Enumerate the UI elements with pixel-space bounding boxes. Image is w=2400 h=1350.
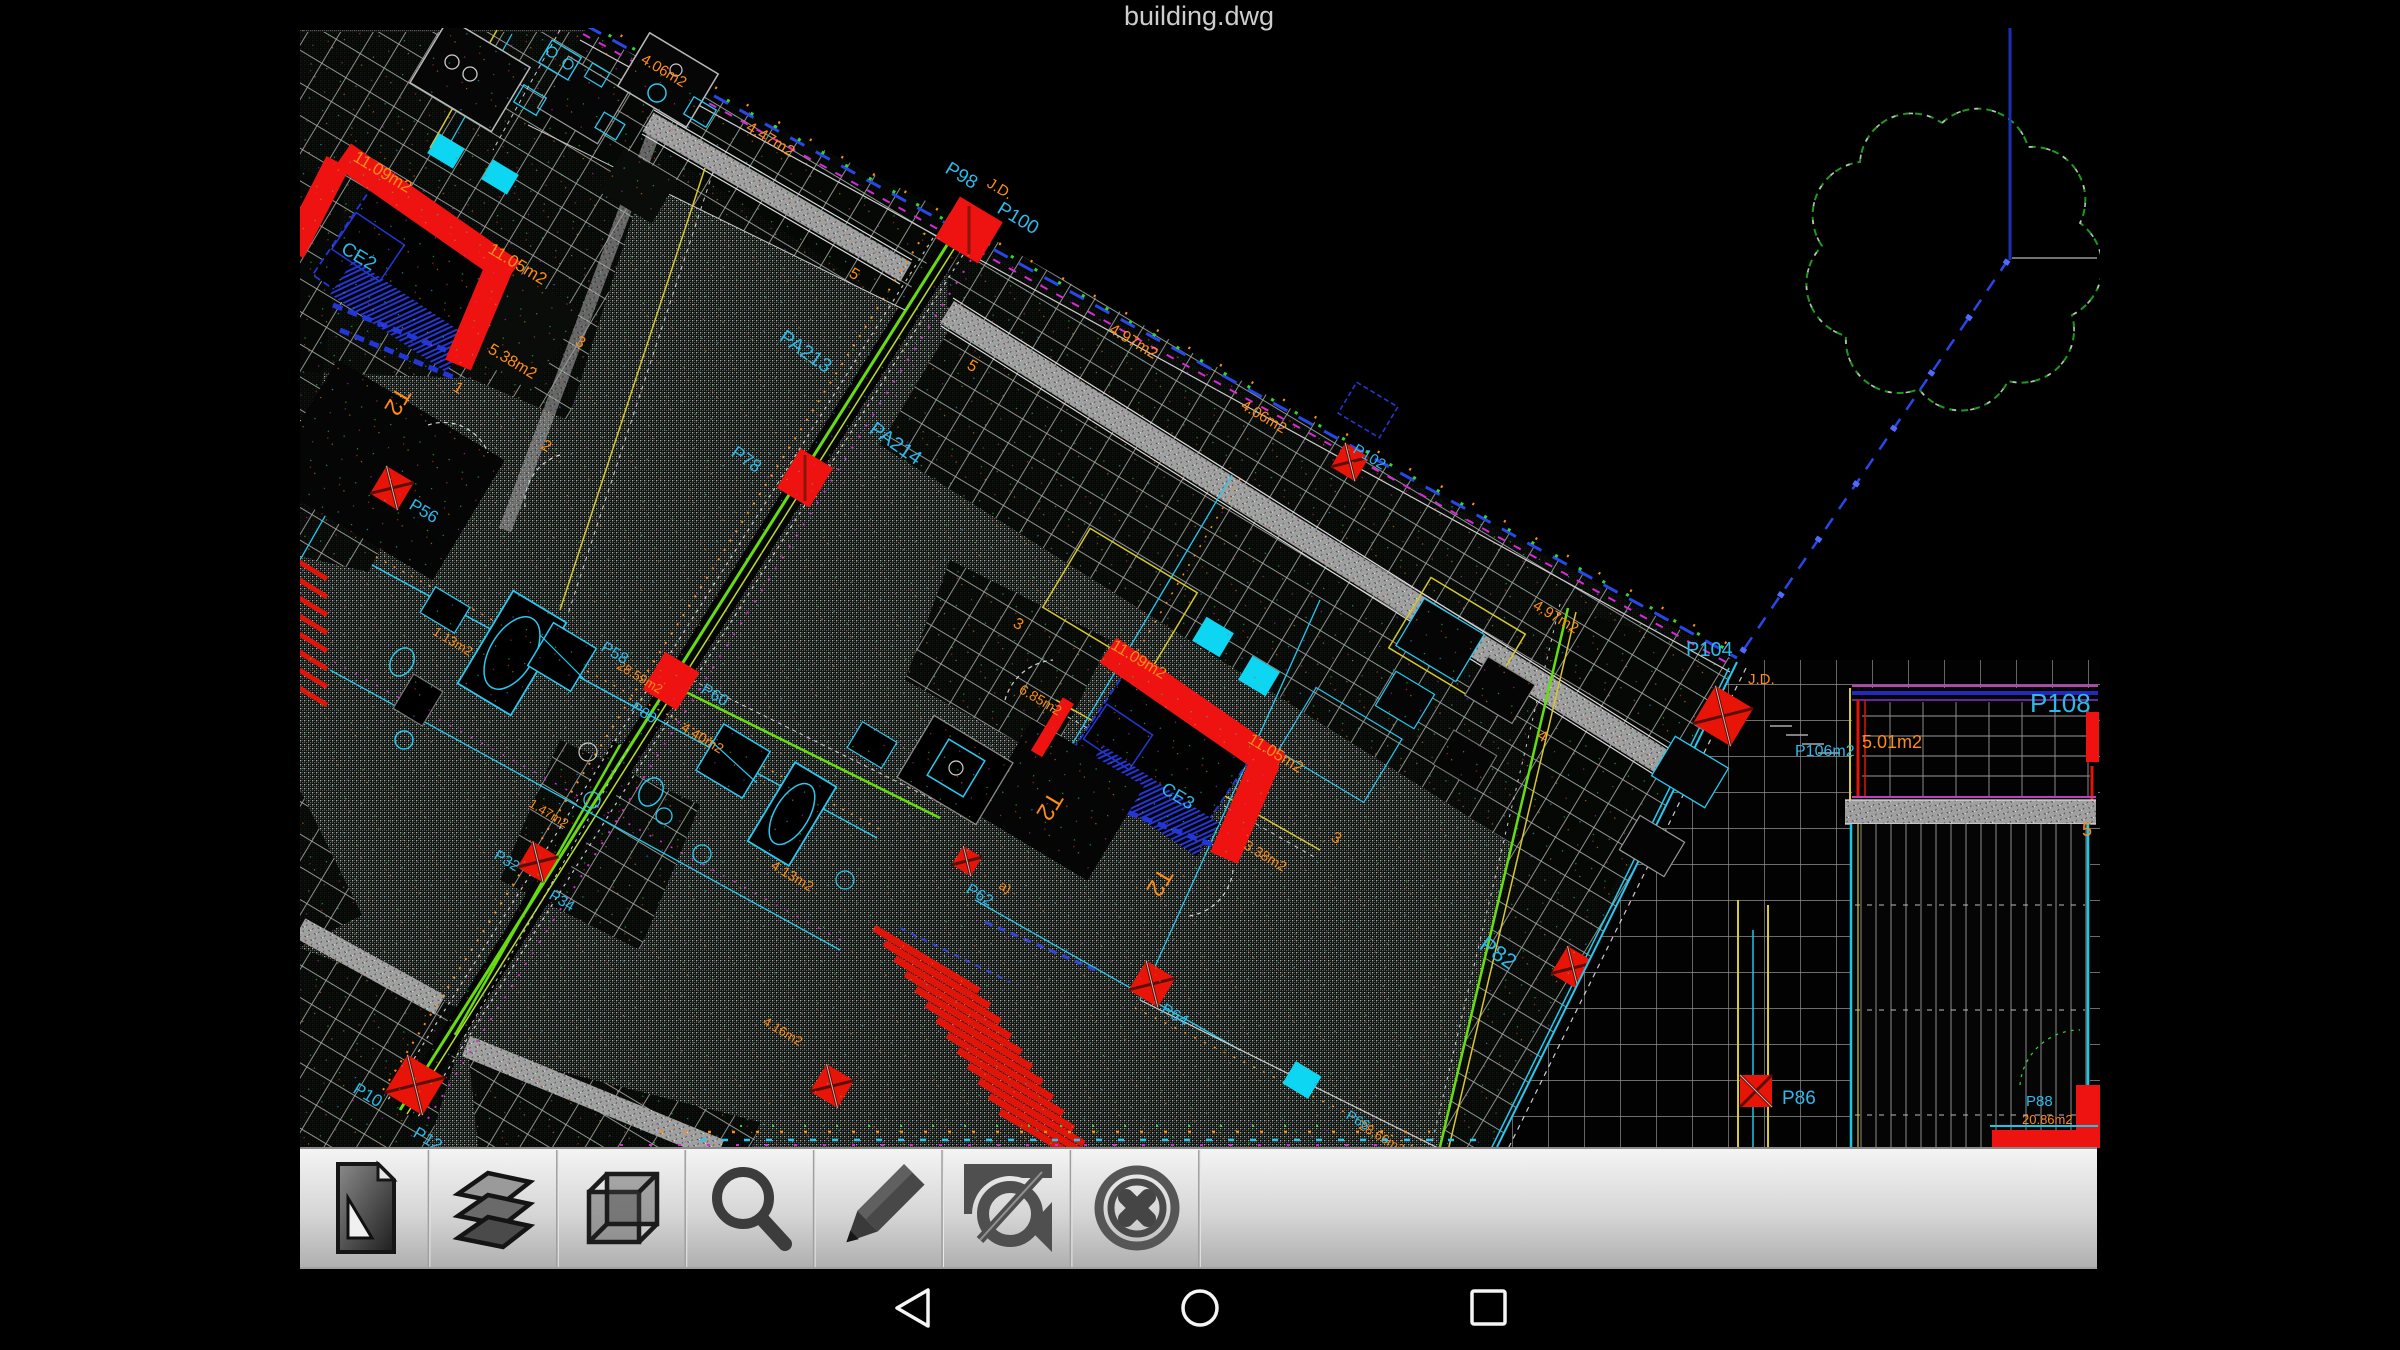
svg-text:P104: P104 [1686,639,1733,661]
svg-text:5: 5 [2082,820,2092,840]
svg-text:building.dwg: building.dwg [1124,1,1274,31]
svg-text:J.D.: J.D. [1748,671,1775,688]
svg-text:P108: P108 [2030,688,2091,718]
svg-text:20.86m2: 20.86m2 [2022,1112,2073,1127]
svg-text:P88: P88 [2026,1093,2053,1110]
svg-text:5.01m2: 5.01m2 [1862,732,1922,752]
svg-text:P106m2: P106m2 [1795,743,1855,760]
svg-text:P86: P86 [1782,1088,1816,1109]
